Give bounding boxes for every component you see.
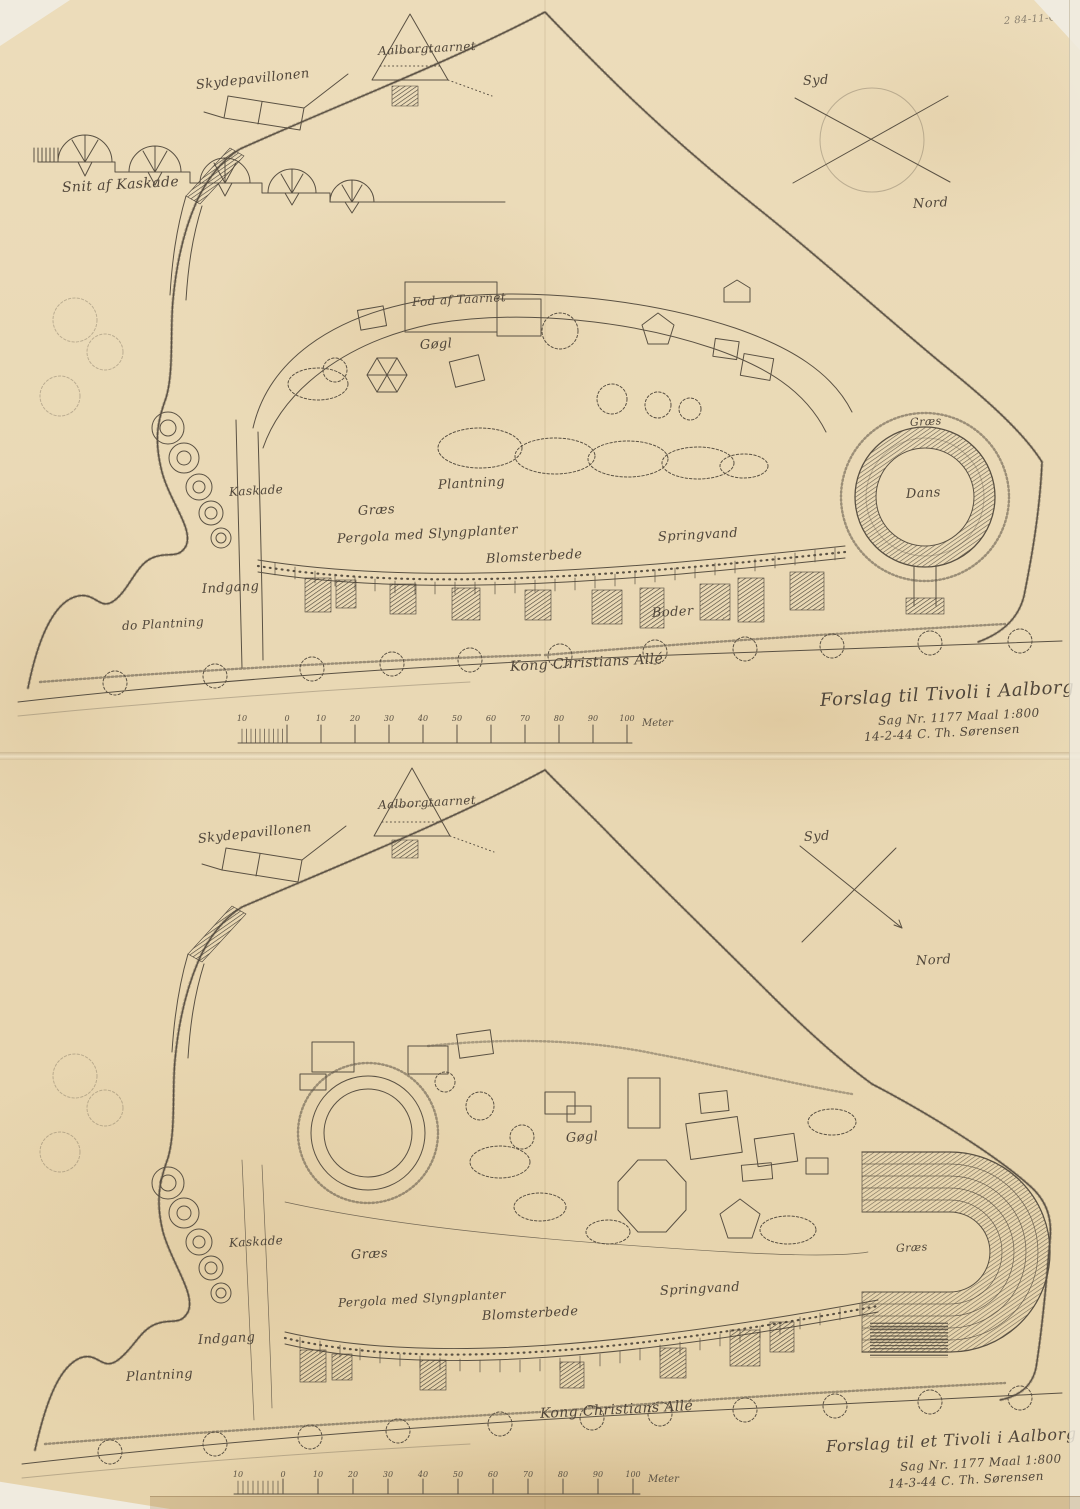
scalebar-tick: 40 [417,714,428,723]
aalborg-tower-outline [372,14,492,106]
tree-clouds [435,1072,856,1244]
label-amusements: Gøgl [566,1129,599,1146]
scalebar-tick: 20 [349,714,360,723]
label-cascade: Kaskade [229,482,284,499]
scalebar-tick: 80 [558,1470,568,1479]
plan-linework: 10 0 10 20 30 40 50 60 70 80 90 100 Mete… [0,0,1080,1509]
label-grass: Græs [358,502,396,519]
scalebar-tick: 30 [383,1470,393,1479]
compass-south-label: Syd [803,73,830,89]
cascade-section-drawing [34,135,505,213]
scalebar-tick: 10 [233,1470,243,1479]
outer-trees [40,298,123,416]
scalebar-tick: 50 [453,1470,463,1479]
scalebar-tick: 90 [588,714,598,723]
compass-north-label: Nord [913,195,949,212]
outer-trees [40,1054,123,1172]
paper-edge-right [1069,0,1080,1509]
label-grass-arena: Græs [896,1240,928,1255]
paper-edge-bottom [150,1496,1080,1509]
approach-stairs [172,906,246,1058]
scalebar-bottom: 10 0 10 20 30 40 50 60 70 80 90 100 Mete… [233,1470,680,1494]
scalebar-tick: 100 [619,714,634,723]
scanned-plan-document: 10 0 10 20 30 40 50 60 70 80 90 100 Mete… [0,0,1080,1509]
label-dance-floor: Dans [906,485,942,502]
label-amusements: Gøgl [420,336,453,353]
aalborg-tower-outline [374,768,494,858]
scalebar-tick: 60 [488,1470,498,1479]
scalebar-tick: 30 [384,714,394,723]
dance-circle [841,413,1009,614]
buildings [300,1030,828,1238]
compass-south-label: Syd [804,829,831,845]
stalls-blocks [305,572,824,628]
sheet-bottom: 10 0 10 20 30 40 50 60 70 80 90 100 Mete… [22,768,1062,1494]
scalebar-tick: 10 [313,1470,323,1479]
scalebar-tick: 80 [554,714,564,723]
scalebar-tick: 70 [523,1470,533,1479]
label-stalls: Boder [652,604,694,621]
label-entrance: Indgang [202,579,260,597]
scalebar-tick: 100 [625,1470,640,1479]
compass-rose [800,846,902,942]
scalebar-tick: 0 [280,1470,285,1479]
label-grass-ring: Græs [910,414,942,429]
tree-clouds [288,313,768,479]
scalebar-tick: 70 [520,714,530,723]
scalebar-top: 10 0 10 20 30 40 50 60 70 80 90 100 Mete… [237,714,674,743]
scalebar-tick: 50 [452,714,462,723]
label-entrance: Indgang [198,1330,256,1348]
scalebar-tick: 10 [316,714,326,723]
compass-rose [793,88,950,192]
label-grass: Græs [351,1246,389,1263]
scalebar-tick: 20 [347,1470,358,1479]
scalebar-unit: Meter [641,718,674,729]
amphitheatre [862,1152,1050,1358]
scalebar-unit: Meter [647,1474,680,1485]
circular-lawn [298,1063,438,1203]
label-cascade: Kaskade [229,1233,284,1250]
scalebar-tick: 40 [417,1470,428,1479]
compass-north-label: Nord [916,952,952,969]
scalebar-tick: 90 [593,1470,603,1479]
scalebar-tick: 60 [486,714,496,723]
scalebar-tick: 0 [284,714,289,723]
scalebar-tick: 10 [237,714,247,723]
sheet-top: 10 0 10 20 30 40 50 60 70 80 90 100 Mete… [18,12,1062,743]
